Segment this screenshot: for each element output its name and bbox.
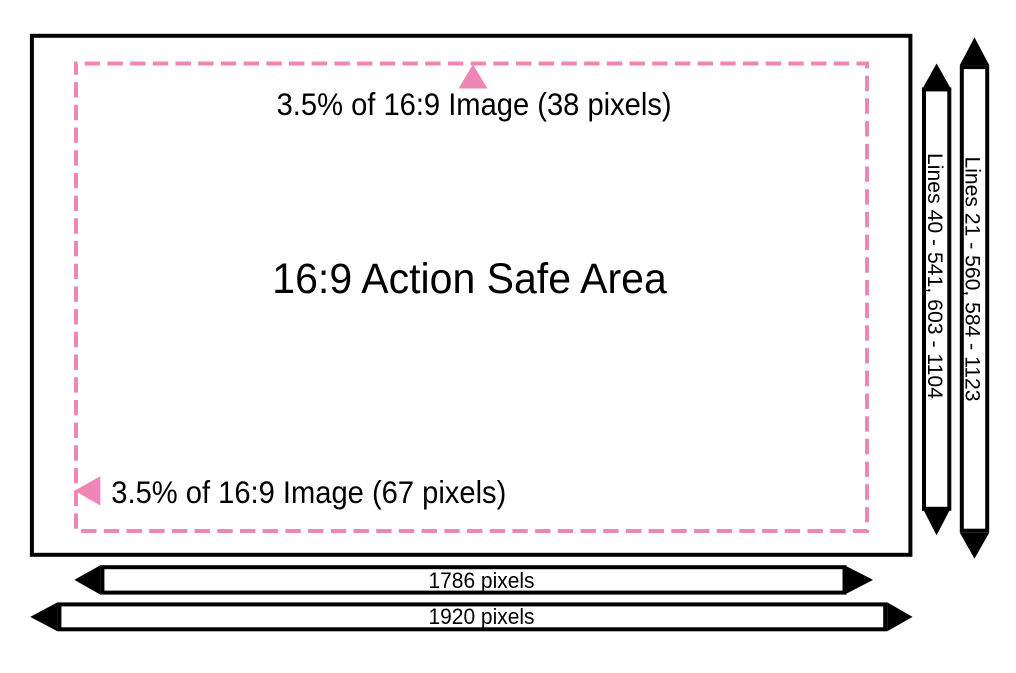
svg-text:16:9 Action Safe Area: 16:9 Action Safe Area [272,255,667,303]
svg-text:Lines 21 - 560, 584 - 1123: Lines 21 - 560, 584 - 1123 [961,157,984,402]
svg-text:1920 pixels: 1920 pixels [429,604,535,629]
svg-text:Lines 40 - 541, 603 - 1104: Lines 40 - 541, 603 - 1104 [923,153,946,399]
svg-text:3.5% of 16:9 Image (67 pixels): 3.5% of 16:9 Image (67 pixels) [111,474,506,510]
svg-text:3.5% of 16:9 Image (38 pixels): 3.5% of 16:9 Image (38 pixels) [277,86,672,122]
svg-text:1786 pixels: 1786 pixels [429,568,535,593]
